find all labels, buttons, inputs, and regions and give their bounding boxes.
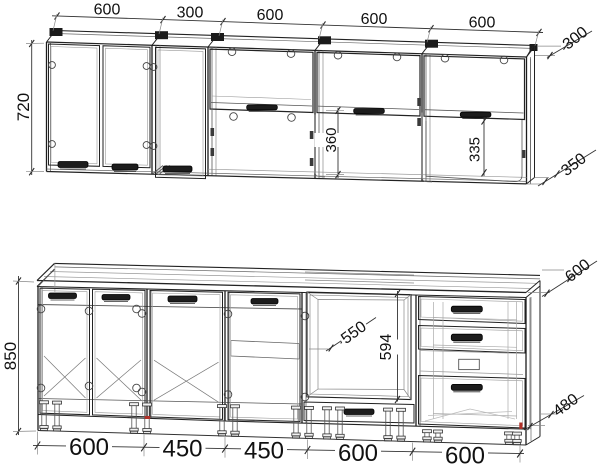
svg-text:450: 450 bbox=[244, 437, 284, 464]
svg-text:600: 600 bbox=[257, 7, 284, 24]
svg-text:450: 450 bbox=[162, 435, 202, 462]
svg-text:300: 300 bbox=[177, 5, 204, 22]
svg-text:600: 600 bbox=[469, 15, 496, 32]
svg-text:720: 720 bbox=[14, 93, 33, 121]
svg-text:360: 360 bbox=[323, 127, 340, 152]
svg-text:600: 600 bbox=[338, 440, 378, 467]
svg-text:600: 600 bbox=[445, 443, 485, 470]
svg-text:600: 600 bbox=[361, 11, 388, 28]
svg-text:600: 600 bbox=[69, 434, 109, 461]
svg-text:850: 850 bbox=[1, 342, 20, 370]
svg-text:600: 600 bbox=[94, 2, 121, 19]
svg-text:335: 335 bbox=[466, 137, 483, 162]
svg-text:594: 594 bbox=[378, 334, 395, 361]
